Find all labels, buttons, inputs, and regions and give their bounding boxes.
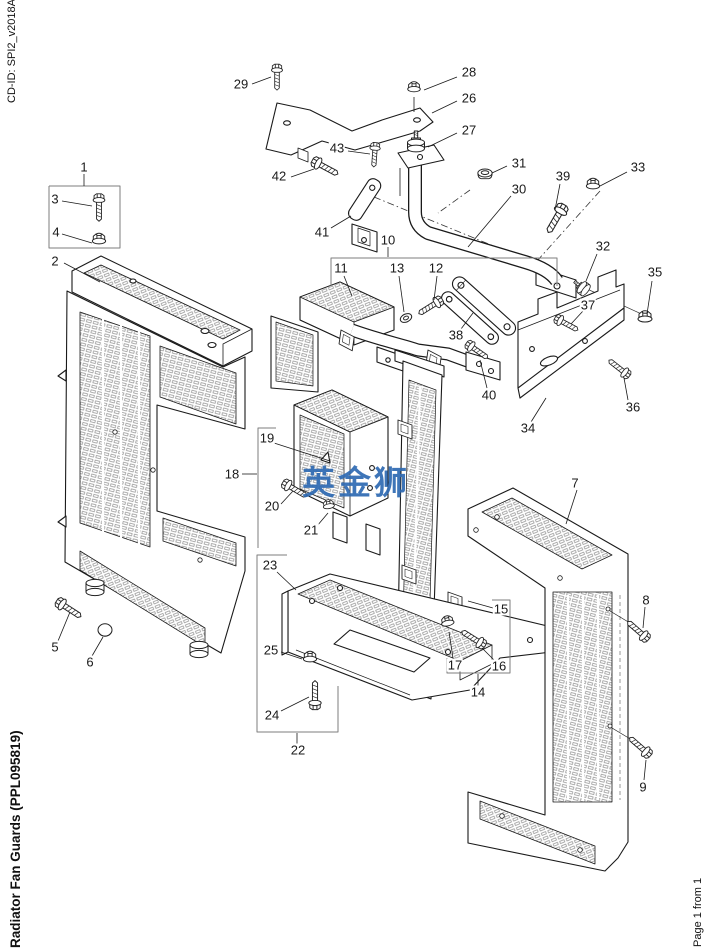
callout-label-6: 6 [85,656,94,669]
bolt-36 [606,356,633,381]
leader-line [252,77,271,84]
nut-33 [586,178,599,189]
right-fan-guard [468,488,632,871]
leader-line [291,169,314,177]
callout-label-36: 36 [625,401,641,414]
callout-label-16: 16 [491,660,507,673]
nut-25 [303,651,316,662]
callout-label-35: 35 [647,266,663,279]
watermark-text: 英金狮 [302,456,410,504]
left-fan-guard [58,256,252,658]
callout-label-41: 41 [314,226,330,239]
upper-arm-bracket [398,145,576,298]
leader-line [586,254,597,281]
bolt-9 [626,733,654,760]
callout-label-22: 22 [290,744,306,757]
callout-label-9: 9 [638,781,647,794]
bolt-39 [542,201,570,236]
leader-line [492,166,507,173]
leader-line [281,697,309,711]
leader-line [643,607,645,628]
callout-label-25: 25 [263,644,279,657]
leader-line [277,572,296,590]
callout-box [258,428,276,548]
leader-line [531,398,546,422]
callout-label-38: 38 [448,329,464,342]
callout-label-29: 29 [233,78,249,91]
callout-label-34: 34 [520,422,536,435]
callout-label-2: 2 [50,255,59,268]
bolt-42 [309,155,340,180]
bolt-5 [53,596,84,622]
leader-line [428,133,457,147]
callout-label-8: 8 [641,594,650,607]
callout-label-43: 43 [329,142,345,155]
callout-label-1: 1 [79,161,88,174]
page-number-text: Page 1 from 1 [692,878,704,947]
callout-label-15: 15 [493,603,509,616]
callout-label-33: 33 [630,161,646,174]
leader-line [58,612,70,641]
callout-label-20: 20 [264,500,280,513]
leader-line [600,172,627,186]
leader-line [468,196,511,247]
leader-line [62,234,92,243]
callout-label-24: 24 [264,709,280,722]
callout-label-23: 23 [262,559,278,572]
callout-label-10: 10 [380,234,396,247]
callout-label-18: 18 [224,468,240,481]
leader-line [62,201,92,206]
nut-4 [92,233,105,244]
leader-line [647,281,652,314]
callout-label-32: 32 [595,240,611,253]
leader-line [468,601,493,608]
callout-label-3: 3 [50,193,59,206]
callout-label-11: 11 [333,262,349,275]
callout-box [49,186,120,248]
callout-label-5: 5 [50,641,59,654]
grommet-31 [478,169,492,179]
leader-line [331,216,351,228]
leader-line [432,101,457,113]
callout-label-28: 28 [461,66,477,79]
leader-line [92,637,103,656]
callout-label-12: 12 [428,262,444,275]
bolt-24 [309,681,321,710]
nut-35 [638,311,652,322]
callout-label-40: 40 [481,389,497,402]
callout-label-14: 14 [470,686,486,699]
callout-label-7: 7 [570,477,579,490]
callout-label-39: 39 [555,170,571,183]
leader-line [566,490,577,524]
callout-label-27: 27 [461,124,477,137]
leader-line [281,491,293,504]
bolt-12 [416,294,445,318]
cd-id-text: CD-ID: SPI2_v2018A [6,0,18,103]
callout-label-4: 4 [51,226,60,239]
parts-catalog-page: 1234567891011121314151617181920212223242… [0,0,711,950]
bolt-3 [93,194,105,221]
nut-28 [408,82,421,92]
leader-line [348,151,370,154]
bolt-29 [271,64,282,90]
callout-label-30: 30 [511,183,527,196]
leader-line [624,378,628,400]
leader-line [399,276,404,312]
washer-13 [399,312,413,324]
callout-label-13: 13 [389,262,405,275]
leader-line [424,77,457,90]
callout-label-17: 17 [447,659,463,672]
callout-label-26: 26 [461,92,477,105]
callout-label-21: 21 [303,524,319,537]
callout-label-42: 42 [271,170,287,183]
callout-label-19: 19 [259,432,275,445]
document-title: Radiator Fan Guards (PPL095819) [8,730,23,948]
pivot-bracket [346,176,383,252]
plug-6 [98,624,112,636]
leader-line [644,760,646,780]
callout-label-37: 37 [580,299,596,312]
callout-label-31: 31 [511,157,527,170]
